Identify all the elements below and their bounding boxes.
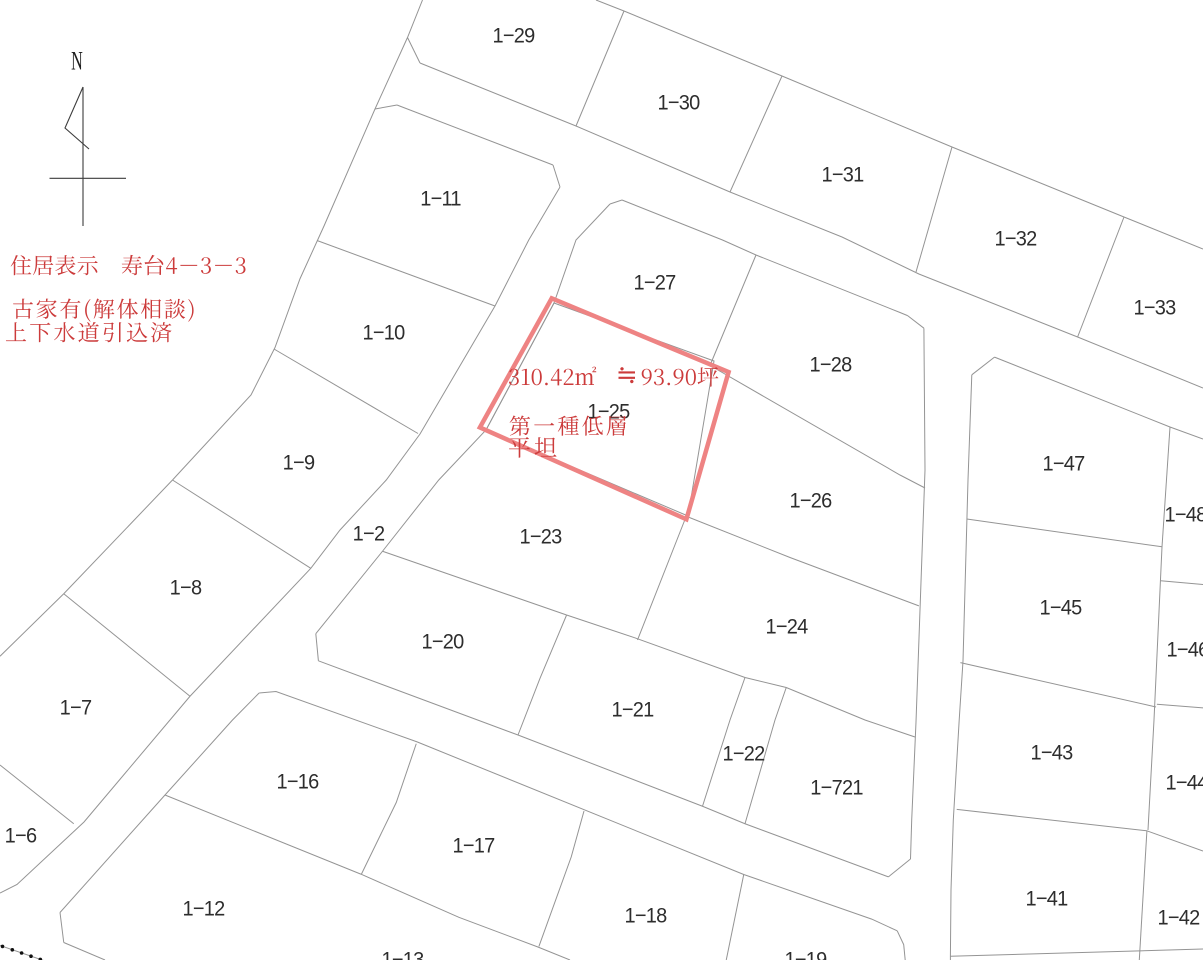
svg-text:N: N <box>71 47 83 76</box>
svg-text:1−28: 1−28 <box>809 353 851 377</box>
svg-text:1−33: 1−33 <box>1133 296 1175 320</box>
svg-text:1−11: 1−11 <box>420 187 461 211</box>
svg-text:1−6: 1−6 <box>5 824 37 848</box>
svg-text:1−2: 1−2 <box>353 522 385 546</box>
svg-text:1−13: 1−13 <box>381 948 423 960</box>
svg-text:1−22: 1−22 <box>722 742 764 766</box>
svg-text:1−48: 1−48 <box>1164 503 1203 527</box>
svg-text:1−18: 1−18 <box>624 904 666 928</box>
svg-text:1−44: 1−44 <box>1165 771 1203 795</box>
svg-text:1−42: 1−42 <box>1157 906 1199 930</box>
svg-text:1−24: 1−24 <box>765 615 807 639</box>
svg-text:1−7: 1−7 <box>60 696 92 720</box>
svg-text:1−20: 1−20 <box>421 630 463 654</box>
svg-text:1−27: 1−27 <box>633 271 675 295</box>
svg-text:1−32: 1−32 <box>994 227 1036 251</box>
svg-text:1−721: 1−721 <box>810 776 863 800</box>
svg-text:1−46: 1−46 <box>1166 638 1203 662</box>
svg-text:1−25: 1−25 <box>587 400 629 424</box>
svg-text:1−19: 1−19 <box>784 948 826 960</box>
svg-text:1−31: 1−31 <box>821 163 863 187</box>
svg-text:1−45: 1−45 <box>1039 596 1081 620</box>
svg-text:1−26: 1−26 <box>789 489 831 513</box>
svg-text:1−8: 1−8 <box>170 576 202 600</box>
svg-text:1−43: 1−43 <box>1030 741 1072 765</box>
svg-text:1−16: 1−16 <box>276 770 318 794</box>
svg-text:1−10: 1−10 <box>362 321 404 345</box>
svg-text:1−29: 1−29 <box>492 24 534 48</box>
svg-text:1−30: 1−30 <box>657 91 699 115</box>
svg-text:1−9: 1−9 <box>283 451 315 475</box>
svg-text:1−47: 1−47 <box>1042 452 1084 476</box>
svg-text:1−17: 1−17 <box>452 834 494 858</box>
svg-text:1−23: 1−23 <box>519 525 561 549</box>
svg-text:1−21: 1−21 <box>611 698 653 722</box>
svg-text:1−12: 1−12 <box>182 897 224 921</box>
svg-text:1−41: 1−41 <box>1025 887 1067 911</box>
